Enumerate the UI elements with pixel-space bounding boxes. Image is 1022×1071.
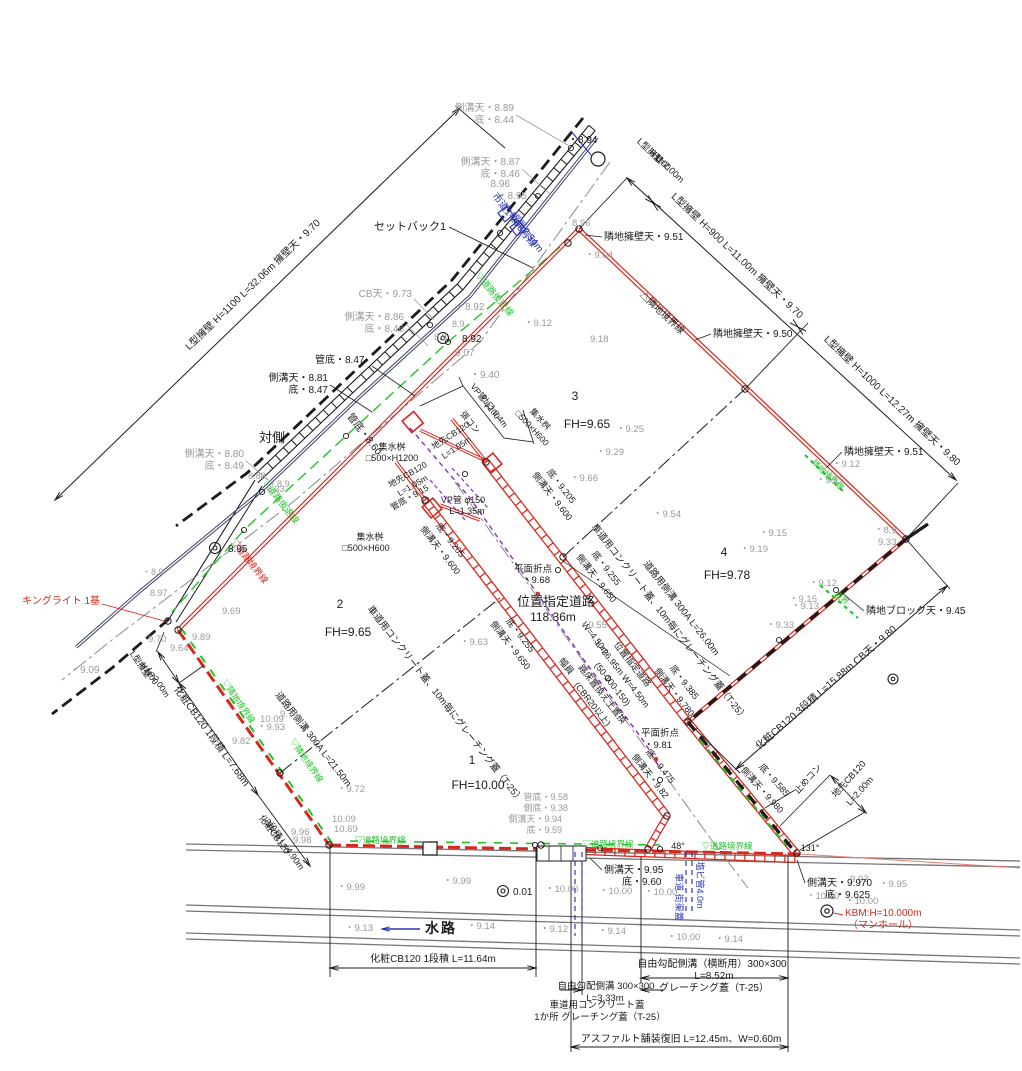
svg-text:・9.12: ・9.12: [832, 459, 860, 470]
svg-text:VP管 φ150: VP管 φ150: [441, 494, 485, 505]
svg-text:・9.99: ・9.99: [443, 876, 471, 887]
svg-text:4: 4: [721, 545, 728, 559]
svg-text:L=8.52m: L=8.52m: [694, 971, 733, 982]
svg-text:8.88: 8.88: [248, 471, 266, 481]
svg-text:9.82: 9.82: [232, 736, 251, 747]
svg-text:8.96: 8.96: [491, 179, 511, 190]
svg-text:・9.14: ・9.14: [467, 921, 495, 932]
svg-text:・8.9: ・8.9: [874, 525, 897, 536]
svg-text:車道用コンクリート蓋: 車道用コンクリート蓋: [549, 999, 645, 1011]
svg-text:・9.95: ・9.95: [879, 879, 907, 890]
svg-text:9.18: 9.18: [590, 334, 609, 345]
svg-text:底・9.59: 底・9.59: [526, 824, 562, 835]
svg-text:側溝天・8.86: 側溝天・8.86: [345, 310, 405, 323]
svg-text:1: 1: [469, 753, 476, 767]
svg-text:側溝天・8.81: 側溝天・8.81: [269, 371, 329, 384]
svg-text:・9.29: ・9.29: [596, 447, 624, 458]
svg-text:境界: 境界: [833, 589, 852, 607]
svg-text:・8.92: ・8.92: [455, 302, 485, 313]
svg-text:□500×H1200: □500×H1200: [366, 453, 418, 463]
svg-text:9.64: 9.64: [170, 643, 189, 654]
svg-text:3: 3: [572, 389, 579, 403]
svg-text:・9.13: ・9.13: [791, 601, 819, 612]
svg-text:アスファルト舗装復旧 L=12.45m、W=0.60m: アスファルト舗装復旧 L=12.45m、W=0.60m: [581, 1032, 782, 1045]
svg-text:118.36m: 118.36m: [530, 610, 576, 624]
svg-text:水路: 水路: [425, 920, 457, 936]
svg-text:8.9: 8.9: [452, 319, 465, 329]
svg-text:キングライト 1基: キングライト 1基: [22, 594, 100, 607]
svg-text:幅員: 幅員: [557, 655, 577, 676]
svg-text:吐口 0.4m: 吐口 0.4m: [479, 393, 510, 429]
svg-text:自由勾配側溝（横断用）300×300: 自由勾配側溝（横断用）300×300: [637, 957, 787, 970]
svg-text:FH=10.00: FH=10.00: [451, 778, 504, 792]
svg-text:隣地擁壁天・9.51: 隣地擁壁天・9.51: [604, 230, 684, 243]
svg-text:側溝天・8.87: 側溝天・8.87: [461, 155, 521, 168]
svg-text:平面折点: 平面折点: [514, 563, 553, 575]
svg-text:2: 2: [337, 597, 344, 611]
svg-text:側溝天・9.94: 側溝天・9.94: [508, 813, 562, 824]
svg-text:側溝天・8.80: 側溝天・8.80: [185, 447, 245, 460]
svg-text:・10.00: ・10.00: [667, 932, 700, 943]
svg-text:止めコン: 止めコン: [791, 762, 823, 796]
svg-text:化粧CB120 3段積 L=15.88m CB天・9.: 化粧CB120 3段積 L=15.88m CB天・9.80: [753, 622, 900, 752]
svg-text:底・9.60: 底・9.60: [622, 875, 662, 888]
svg-text:・9.66: ・9.66: [570, 473, 598, 484]
svg-text:1か所 グレーチング蓋（T-25）: 1か所 グレーチング蓋（T-25）: [534, 1011, 665, 1023]
svg-text:・8.9: ・8.9: [142, 567, 164, 577]
svg-text:L型擁壁 H=1100 L=32.06m 擁壁天・9.: L型擁壁 H=1100 L=32.06m 擁壁天・9.70: [182, 216, 323, 353]
svg-text:・9.12: ・9.12: [540, 924, 568, 935]
svg-text:FH=9.78: FH=9.78: [704, 568, 751, 582]
svg-text:対側: 対側: [259, 430, 285, 445]
svg-text:9.69: 9.69: [222, 606, 241, 617]
svg-text:隣地擁壁天・9.51: 隣地擁壁天・9.51: [844, 445, 924, 458]
svg-text:・9.13: ・9.13: [345, 923, 373, 934]
svg-text:・8.33: ・8.33: [258, 484, 285, 494]
svg-text:L=1.35m: L=1.35m: [449, 506, 484, 516]
svg-text:8.95: 8.95: [228, 544, 248, 555]
svg-text:9.98: 9.98: [293, 835, 312, 846]
svg-text:131°: 131°: [801, 843, 820, 853]
svg-text:・9.09: ・9.09: [70, 665, 100, 676]
svg-text:位置指定道路: 位置指定道路: [517, 594, 595, 609]
svg-text:・9.19: ・9.19: [740, 544, 768, 555]
svg-text:自由勾配側溝 300×300: 自由勾配側溝 300×300: [558, 980, 655, 992]
svg-text:0.01: 0.01: [513, 887, 533, 898]
svg-text:・9.14: ・9.14: [598, 926, 626, 937]
svg-text:・9.68: ・9.68: [522, 575, 550, 586]
svg-text:・9.81: ・9.81: [644, 740, 672, 751]
svg-text:・9.15: ・9.15: [759, 528, 787, 539]
svg-text:・9.12: ・9.12: [809, 578, 837, 589]
svg-text:底・9.625: 底・9.625: [825, 888, 870, 901]
svg-text:・9.99: ・9.99: [337, 882, 365, 893]
svg-text:隣地擁壁天・9.50: 隣地擁壁天・9.50: [713, 327, 793, 340]
svg-text:・9.25: ・9.25: [616, 424, 644, 435]
svg-text:9.74: 9.74: [280, 709, 299, 720]
svg-text:・9.72: ・9.72: [337, 784, 365, 795]
svg-text:管底・9.58: 管底・9.58: [523, 791, 568, 802]
svg-text:・10.00: ・10.00: [644, 887, 677, 898]
svg-text:グレーチング蓋（T-25）: グレーチング蓋（T-25）: [659, 981, 769, 994]
svg-text:側溝天・8.89: 側溝天・8.89: [455, 101, 515, 114]
svg-text:・10.00: ・10.00: [545, 884, 578, 895]
svg-text:側溝天・9.970: 側溝天・9.970: [807, 876, 872, 889]
svg-text:・9.54: ・9.54: [653, 509, 681, 520]
svg-text:10.69: 10.69: [334, 824, 358, 835]
svg-text:集水桝: 集水桝: [356, 531, 383, 542]
svg-text:9.07: 9.07: [455, 348, 475, 359]
svg-text:底・8.47: 底・8.47: [289, 383, 329, 396]
svg-text:8.96: 8.96: [572, 218, 591, 229]
svg-text:化粧CB120 1段積 L=11.64m: 化粧CB120 1段積 L=11.64m: [370, 952, 496, 965]
svg-text:・9.04: ・9.04: [585, 250, 613, 261]
svg-text:（マンホール）: （マンホール）: [848, 919, 918, 931]
svg-text:L型擁壁 H=900 L=11.00m 擁壁天・9.7: L型擁壁 H=900 L=11.00m 擁壁天・9.70: [669, 190, 807, 322]
svg-text:管底・8.47: 管底・8.47: [315, 353, 365, 366]
svg-text:・9.63: ・9.63: [460, 637, 488, 648]
svg-text:・9.15: ・9.15: [816, 475, 844, 486]
svg-text:セットバック1: セットバック1: [374, 220, 446, 233]
svg-text:側溝天・9.95: 側溝天・9.95: [604, 863, 664, 876]
svg-text:底・8.49: 底・8.49: [205, 459, 245, 472]
svg-text:9.33: 9.33: [878, 537, 897, 548]
svg-text:・9.40: ・9.40: [470, 370, 500, 381]
svg-text:・9.93: ・9.93: [257, 722, 285, 733]
svg-text:9.89: 9.89: [192, 632, 211, 643]
svg-text:KBM:H=10.000m: KBM:H=10.000m: [845, 908, 921, 919]
svg-text:L=2.00m: L=2.00m: [654, 153, 686, 185]
svg-text:・9.55: ・9.55: [579, 620, 607, 631]
svg-text:平面折点: 平面折点: [641, 727, 680, 739]
svg-text:△隣地境界線: △隣地境界線: [637, 289, 687, 337]
svg-text:・9.33: ・9.33: [766, 620, 794, 631]
svg-text:L=2.00m: L=2.00m: [145, 666, 172, 699]
svg-text:8.9: 8.9: [434, 332, 447, 342]
svg-text:・9.14: ・9.14: [715, 934, 743, 945]
svg-text:隣地ブロック天・9.45: 隣地ブロック天・9.45: [866, 604, 966, 617]
svg-text:・9.12: ・9.12: [524, 318, 552, 329]
svg-text:集水桝: 集水桝: [378, 441, 405, 452]
svg-text:塩ビ管4.0m: 塩ビ管4.0m: [695, 861, 706, 908]
svg-text:底・8.46: 底・8.46: [365, 322, 405, 335]
svg-text:・8.94: ・8.94: [568, 135, 598, 146]
svg-text:9.70: 9.70: [148, 634, 167, 645]
svg-text:▽道路境界線: ▽道路境界線: [701, 841, 753, 851]
svg-text:□500×H600: □500×H600: [342, 543, 389, 553]
svg-text:▽道路境界線: ▽道路境界線: [582, 839, 634, 849]
svg-text:48°: 48°: [671, 841, 685, 851]
svg-text:側底・9.38: 側底・9.38: [523, 802, 568, 813]
svg-text:▽道路境界線: ▽道路境界線: [354, 835, 406, 845]
svg-text:FH=9.65: FH=9.65: [325, 625, 372, 639]
svg-text:FH=9.65: FH=9.65: [564, 417, 611, 431]
svg-text:8.97: 8.97: [150, 588, 168, 598]
svg-text:CB天・9.73: CB天・9.73: [359, 289, 413, 300]
svg-text:底・8.44: 底・8.44: [475, 113, 515, 126]
svg-text:8.92: 8.92: [462, 334, 482, 345]
